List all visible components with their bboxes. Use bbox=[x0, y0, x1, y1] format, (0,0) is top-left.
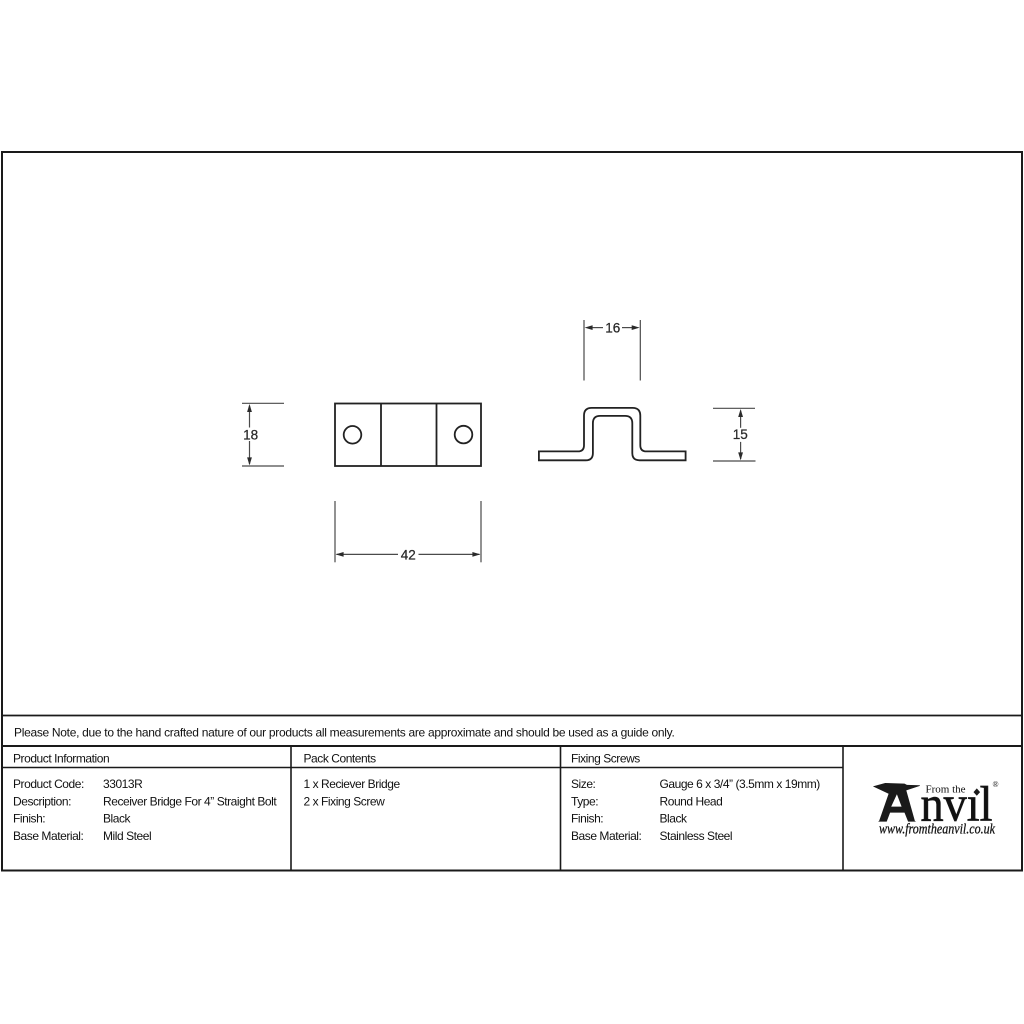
svg-text:Description:: Description: bbox=[13, 795, 71, 809]
svg-text:Finish:: Finish: bbox=[13, 812, 45, 826]
svg-text:Product Information: Product Information bbox=[13, 752, 109, 766]
svg-text:Base Material:: Base Material: bbox=[571, 829, 642, 843]
svg-text:Stainless Steel: Stainless Steel bbox=[660, 829, 733, 843]
svg-text:Finish:: Finish: bbox=[571, 812, 603, 826]
svg-text:Size:: Size: bbox=[571, 777, 596, 791]
svg-text:Please Note, due to the hand c: Please Note, due to the hand crafted nat… bbox=[14, 725, 674, 739]
svg-text:42: 42 bbox=[401, 547, 416, 562]
svg-text:33013R: 33013R bbox=[103, 777, 143, 791]
svg-text:Base Material:: Base Material: bbox=[13, 829, 84, 843]
svg-text:Gauge 6 x 3/4” (3.5mm x 19mm): Gauge 6 x 3/4” (3.5mm x 19mm) bbox=[660, 777, 821, 791]
svg-text:Type:: Type: bbox=[571, 795, 598, 809]
svg-text:2 x Fixing Screw: 2 x Fixing Screw bbox=[304, 795, 386, 809]
svg-text:1 x Reciever Bridge: 1 x Reciever Bridge bbox=[304, 777, 401, 791]
svg-text:Mild Steel: Mild Steel bbox=[103, 829, 151, 843]
svg-text:15: 15 bbox=[733, 427, 748, 442]
svg-text:Black: Black bbox=[660, 812, 689, 826]
svg-text:Black: Black bbox=[103, 812, 132, 826]
svg-text:Pack Contents: Pack Contents bbox=[304, 752, 377, 766]
svg-text:www.fromtheanvil.co.uk: www.fromtheanvil.co.uk bbox=[879, 822, 995, 838]
svg-text:Round Head: Round Head bbox=[660, 795, 723, 809]
svg-text:18: 18 bbox=[243, 427, 258, 442]
svg-text:Receiver Bridge For 4” Straigh: Receiver Bridge For 4” Straight Bolt bbox=[103, 795, 277, 809]
svg-text:Fixing Screws: Fixing Screws bbox=[571, 752, 640, 766]
svg-text:Product Code:: Product Code: bbox=[13, 777, 84, 791]
svg-text:®: ® bbox=[993, 780, 999, 789]
svg-text:16: 16 bbox=[605, 320, 620, 335]
